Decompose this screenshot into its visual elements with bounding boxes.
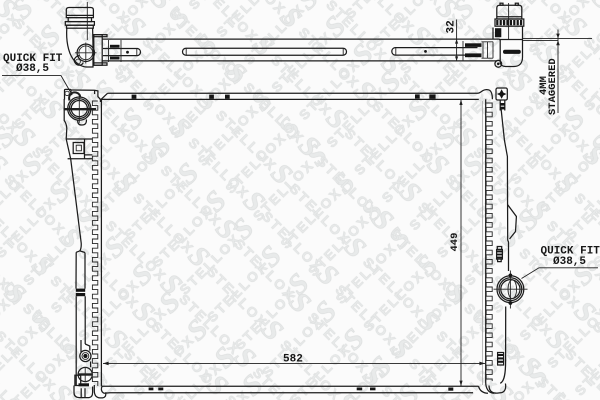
svg-text:582: 582	[283, 353, 303, 365]
svg-text:Ø38,5: Ø38,5	[553, 256, 586, 268]
svg-text:Ø38,5: Ø38,5	[16, 63, 49, 75]
svg-text:32: 32	[446, 20, 458, 33]
svg-text:449: 449	[449, 233, 461, 252]
svg-text:STAGGERED: STAGGERED	[547, 58, 559, 115]
